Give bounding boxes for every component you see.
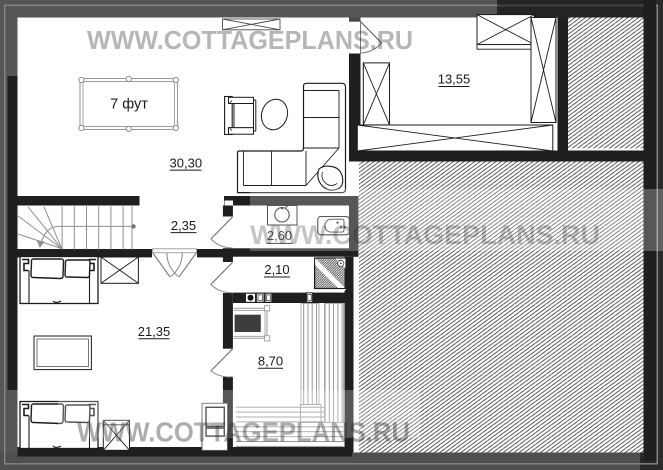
svg-text:WWW.COTTAGEPLANS.RU: WWW.COTTAGEPLANS.RU <box>77 417 410 448</box>
svg-text:13,55: 13,55 <box>438 72 471 87</box>
svg-text:2,10: 2,10 <box>264 262 289 277</box>
svg-text:7 фут: 7 фут <box>110 97 148 113</box>
svg-text:WWW.COTTAGEPLANS.RU: WWW.COTTAGEPLANS.RU <box>87 25 413 55</box>
svg-text:2,35: 2,35 <box>171 218 196 233</box>
svg-text:21,35: 21,35 <box>138 324 171 339</box>
svg-text:30,30: 30,30 <box>170 155 203 170</box>
svg-text:WWW.COTTAGEPLANS.RU: WWW.COTTAGEPLANS.RU <box>250 220 600 250</box>
svg-text:8,70: 8,70 <box>258 353 283 368</box>
